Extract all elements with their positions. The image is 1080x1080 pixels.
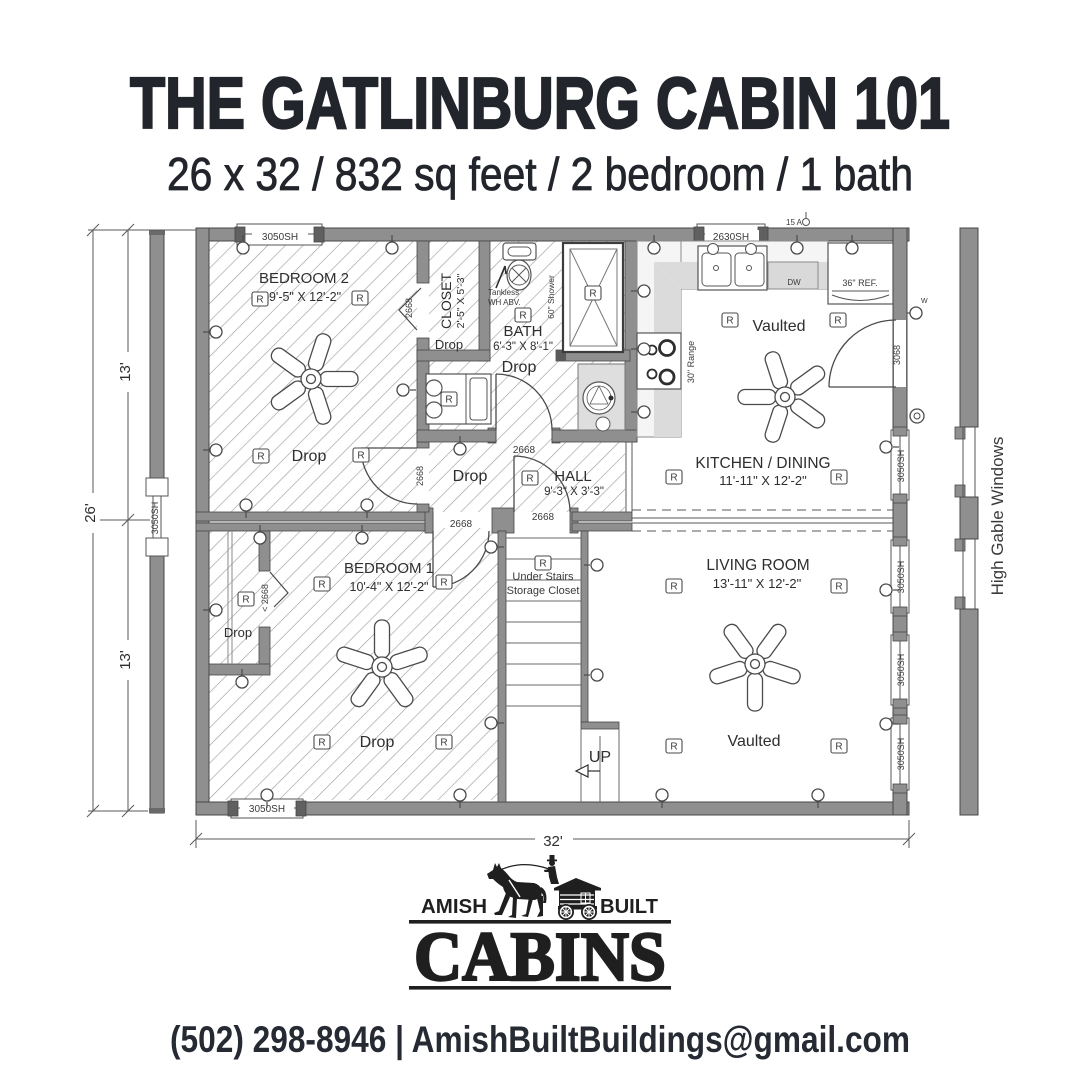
svg-text:2668: 2668 bbox=[513, 445, 536, 456]
svg-text:30" Range: 30" Range bbox=[686, 341, 696, 383]
svg-text:3068: 3068 bbox=[892, 345, 902, 365]
svg-text:Drop: Drop bbox=[224, 625, 252, 640]
svg-text:3050SH: 3050SH bbox=[896, 450, 906, 483]
svg-text:AMISH: AMISH bbox=[421, 896, 487, 918]
svg-text:W: W bbox=[921, 298, 928, 305]
svg-text:26': 26' bbox=[82, 503, 99, 523]
svg-text:32': 32' bbox=[543, 833, 563, 850]
svg-text:CABINS: CABINS bbox=[414, 919, 666, 996]
svg-text:2'-5" X 5'-3": 2'-5" X 5'-3" bbox=[455, 273, 467, 328]
svg-text:Vaulted: Vaulted bbox=[727, 733, 780, 750]
svg-text:Under Stairs: Under Stairs bbox=[512, 571, 574, 583]
svg-text:THE GATLINBURG CABIN 101: THE GATLINBURG CABIN 101 bbox=[130, 64, 950, 144]
svg-text:3050SH: 3050SH bbox=[896, 654, 906, 687]
svg-text:6'-3" X 8'-1": 6'-3" X 8'-1" bbox=[493, 341, 553, 353]
svg-text:Vaulted: Vaulted bbox=[752, 318, 805, 335]
svg-text:< 2668: < 2668 bbox=[260, 584, 270, 612]
svg-text:2668: 2668 bbox=[450, 519, 473, 530]
svg-text:11'-11" X 12'-2": 11'-11" X 12'-2" bbox=[719, 473, 807, 488]
svg-text:2668: 2668 bbox=[532, 512, 555, 523]
svg-text:DW: DW bbox=[787, 278, 801, 287]
svg-text:BEDROOM 2: BEDROOM 2 bbox=[259, 270, 349, 287]
svg-text:Drop: Drop bbox=[453, 468, 488, 485]
svg-text:36" REF.: 36" REF. bbox=[842, 278, 877, 288]
svg-text:Drop: Drop bbox=[435, 337, 463, 352]
svg-text:3050SH: 3050SH bbox=[150, 502, 160, 535]
svg-text:Drop: Drop bbox=[502, 359, 537, 376]
svg-text:High Gable Windows: High Gable Windows bbox=[988, 437, 1007, 596]
svg-text:(502) 298-8946 | AmishBuiltBui: (502) 298-8946 | AmishBuiltBuildings@gma… bbox=[170, 1019, 910, 1061]
svg-text:13': 13' bbox=[117, 650, 134, 670]
svg-text:13'-11" X 12'-2": 13'-11" X 12'-2" bbox=[713, 576, 802, 591]
svg-text:2668: 2668 bbox=[404, 298, 414, 318]
svg-text:Storage Closet: Storage Closet bbox=[507, 585, 580, 597]
svg-text:3050SH: 3050SH bbox=[896, 561, 906, 594]
svg-text:9'-5" X 12'-2": 9'-5" X 12'-2" bbox=[269, 290, 341, 304]
svg-text:Drop: Drop bbox=[360, 734, 395, 751]
svg-text:13': 13' bbox=[117, 362, 134, 382]
svg-text:26 x 32 / 832 sq feet / 2 bedr: 26 x 32 / 832 sq feet / 2 bedroom / 1 ba… bbox=[167, 148, 913, 200]
svg-text:9'-3" X 3'-3": 9'-3" X 3'-3" bbox=[544, 486, 604, 498]
svg-text:WH ABV.: WH ABV. bbox=[488, 298, 521, 307]
svg-text:15 A: 15 A bbox=[786, 218, 803, 227]
svg-text:3050SH: 3050SH bbox=[896, 738, 906, 771]
svg-text:HALL: HALL bbox=[554, 468, 592, 485]
svg-text:KITCHEN / DINING: KITCHEN / DINING bbox=[695, 455, 830, 472]
svg-text:10'-4" X 12'-2": 10'-4" X 12'-2" bbox=[350, 580, 429, 594]
svg-text:UP: UP bbox=[589, 749, 611, 766]
svg-text:Drop: Drop bbox=[292, 448, 327, 465]
svg-text:3050SH: 3050SH bbox=[262, 232, 298, 243]
svg-text:BEDROOM 1: BEDROOM 1 bbox=[344, 560, 434, 577]
svg-text:2668: 2668 bbox=[415, 466, 425, 486]
svg-text:LIVING ROOM: LIVING ROOM bbox=[706, 557, 809, 574]
svg-text:BATH: BATH bbox=[504, 323, 543, 340]
svg-text:Tankless: Tankless bbox=[488, 288, 519, 297]
svg-text:CLOSET: CLOSET bbox=[438, 273, 454, 329]
svg-text:60" Shower: 60" Shower bbox=[546, 275, 556, 319]
svg-text:BUILT: BUILT bbox=[600, 896, 658, 918]
